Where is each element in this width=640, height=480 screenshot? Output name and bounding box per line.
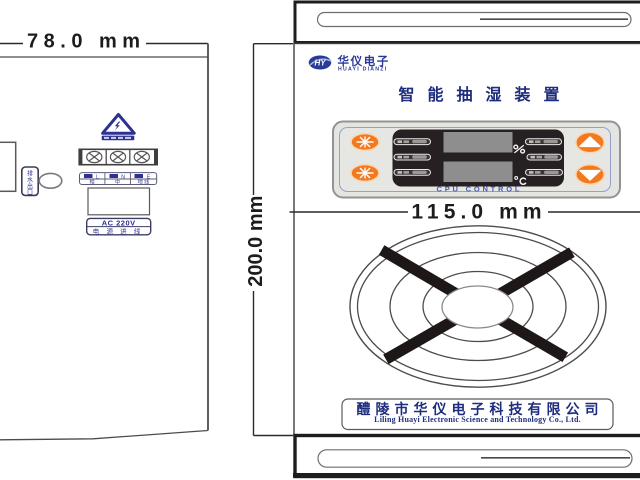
svg-text:Liling Huayi Electronic Scienc: Liling Huayi Electronic Science and Tech…: [374, 415, 581, 424]
svg-text:AC 220V: AC 220V: [102, 218, 136, 227]
svg-text:78.0 mm: 78.0 mm: [27, 31, 146, 53]
svg-text:200.0 mm: 200.0 mm: [245, 196, 267, 287]
svg-text:水: 水: [27, 176, 33, 184]
svg-text:HUAYI DIANZI: HUAYI DIANZI: [338, 67, 387, 73]
svg-text:115.0 mm: 115.0 mm: [411, 201, 546, 224]
svg-text:出: 出: [27, 183, 33, 191]
svg-text:口: 口: [27, 190, 33, 197]
svg-text:智能抽湿装置: 智能抽湿装置: [398, 85, 572, 104]
svg-text:相: 相: [89, 179, 94, 186]
svg-text:L: L: [96, 174, 99, 180]
svg-text:N: N: [121, 174, 125, 180]
svg-text:电源进线: 电源进线: [93, 226, 148, 235]
svg-text:排: 排: [27, 170, 33, 178]
svg-text:HY: HY: [314, 59, 326, 68]
svg-text:CPU CONTROL: CPU CONTROL: [436, 185, 522, 194]
svg-text:地 线: 地 线: [138, 179, 149, 186]
svg-text:中: 中: [115, 179, 120, 186]
